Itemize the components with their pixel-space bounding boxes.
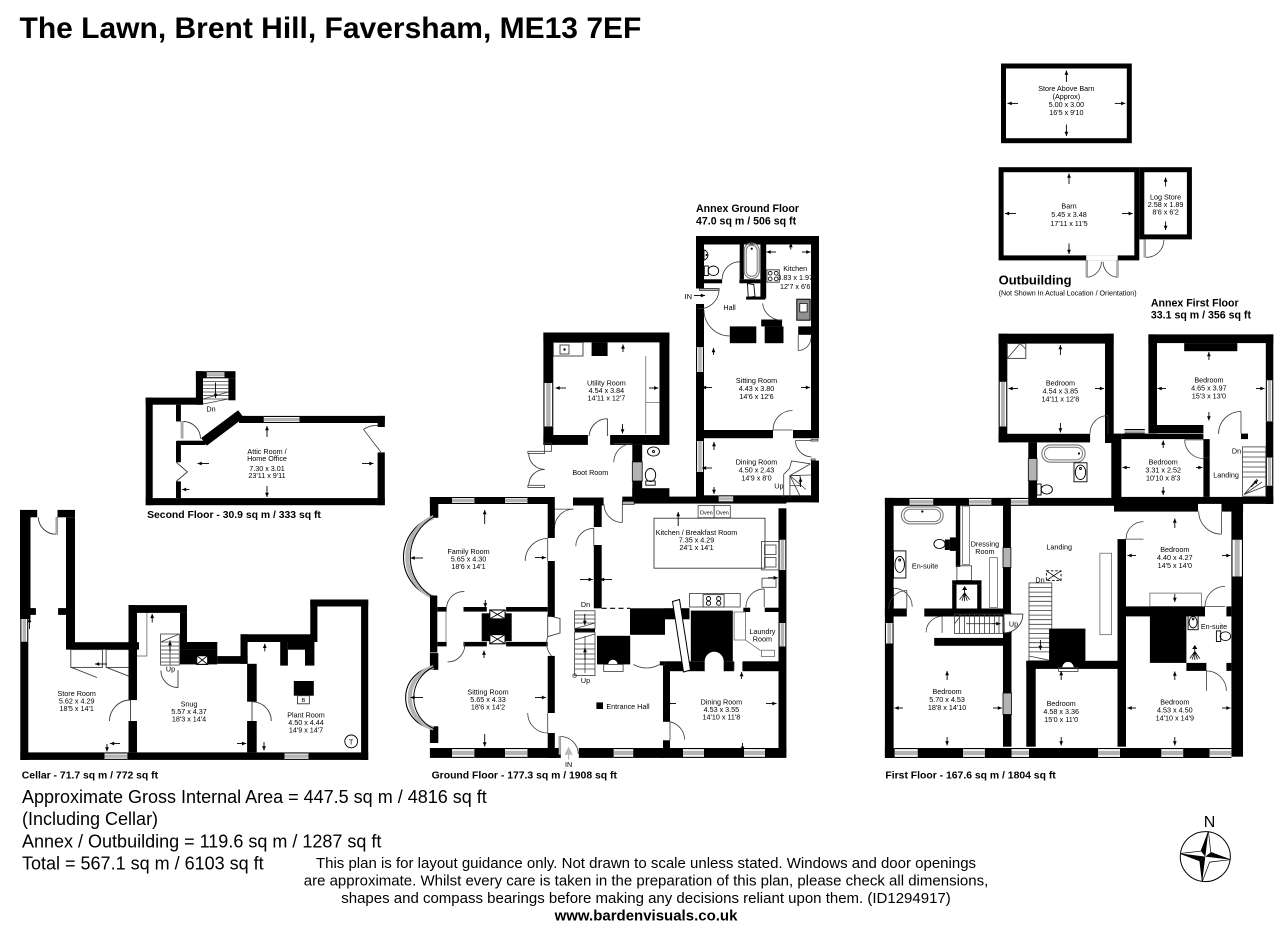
svg-text:Annex First Floor: Annex First Floor — [1151, 297, 1239, 309]
svg-text:3.83 x 1.97: 3.83 x 1.97 — [777, 273, 813, 282]
svg-text:14'10 x 14'9: 14'10 x 14'9 — [1156, 713, 1194, 722]
svg-text:18'6 x 14'2: 18'6 x 14'2 — [471, 703, 505, 712]
svg-text:Up: Up — [166, 665, 175, 674]
svg-text:(Including Cellar): (Including Cellar) — [22, 809, 158, 829]
svg-text:N: N — [1204, 814, 1216, 831]
svg-text:Ground Floor - 177.3 sq m / 19: Ground Floor - 177.3 sq m / 1908 sq ft — [432, 771, 618, 782]
svg-text:8'6 x 6'2: 8'6 x 6'2 — [1152, 207, 1178, 216]
svg-text:Annex / Outbuilding = 119.6 sq: Annex / Outbuilding = 119.6 sq m / 1287 … — [22, 832, 381, 852]
svg-text:Landing: Landing — [1213, 471, 1239, 480]
svg-text:Up: Up — [1009, 619, 1018, 628]
svg-text:Oven: Oven — [716, 511, 729, 517]
svg-text:Room: Room — [753, 635, 772, 644]
svg-text:Up: Up — [581, 676, 590, 685]
svg-text:En-suite: En-suite — [1201, 622, 1227, 631]
svg-text:Hall: Hall — [723, 303, 736, 312]
svg-text:Room: Room — [975, 547, 994, 556]
svg-text:12'7 x 6'6: 12'7 x 6'6 — [780, 282, 810, 291]
svg-text:5.45 x 3.48: 5.45 x 3.48 — [1051, 210, 1087, 219]
svg-text:First Floor - 167.6 sq m / 180: First Floor - 167.6 sq m / 1804 sq ft — [885, 771, 1056, 782]
svg-text:Barn: Barn — [1061, 201, 1076, 210]
svg-text:B: B — [301, 698, 305, 704]
svg-text:24'1 x 14'1: 24'1 x 14'1 — [679, 543, 713, 552]
svg-text:Dn: Dn — [1035, 576, 1044, 585]
svg-text:Entrance Hall: Entrance Hall — [606, 702, 650, 711]
svg-text:Annex Ground Floor: Annex Ground Floor — [696, 203, 799, 215]
svg-text:Total = 567.1 sq m / 6103 sq f: Total = 567.1 sq m / 6103 sq ft — [22, 854, 264, 874]
svg-text:33.1 sq m / 356 sq ft: 33.1 sq m / 356 sq ft — [1151, 310, 1252, 322]
svg-text:18'6 x 14'1: 18'6 x 14'1 — [451, 562, 485, 571]
svg-text:15'3 x 13'0: 15'3 x 13'0 — [1192, 392, 1226, 401]
svg-text:This plan is for layout guidan: This plan is for layout guidance only. N… — [316, 855, 976, 872]
svg-text:14'5 x 14'0: 14'5 x 14'0 — [1158, 561, 1192, 570]
svg-text:14'11 x 12'7: 14'11 x 12'7 — [588, 394, 626, 403]
svg-text:14'11 x 12'8: 14'11 x 12'8 — [1042, 395, 1080, 404]
svg-text:(Not Shown In Actual Location: (Not Shown In Actual Location / Orientat… — [999, 290, 1137, 298]
svg-text:17'11 x 11'5: 17'11 x 11'5 — [1050, 219, 1087, 228]
svg-text:T: T — [349, 739, 354, 746]
svg-text:14'10 x 11'8: 14'10 x 11'8 — [703, 713, 741, 722]
svg-text:14'9 x 14'7: 14'9 x 14'7 — [289, 725, 323, 734]
svg-text:shapes and compass bearings be: shapes and compass bearings before makin… — [341, 890, 951, 907]
svg-text:IN: IN — [565, 760, 572, 769]
svg-text:Dn: Dn — [206, 405, 215, 414]
svg-text:16'5 x 9'10: 16'5 x 9'10 — [1049, 108, 1083, 117]
svg-text:Home Office: Home Office — [247, 454, 287, 463]
svg-text:47.0 sq m / 506 sq ft: 47.0 sq m / 506 sq ft — [696, 215, 797, 227]
svg-text:Outbuilding: Outbuilding — [999, 273, 1072, 288]
svg-text:IN: IN — [685, 292, 693, 301]
svg-text:10'10 x 8'3: 10'10 x 8'3 — [1146, 473, 1180, 482]
svg-text:14'6 x 12'6: 14'6 x 12'6 — [739, 392, 773, 401]
svg-text:Oven: Oven — [700, 511, 713, 517]
svg-text:Boot Room: Boot Room — [572, 468, 608, 477]
svg-text:Landing: Landing — [1046, 543, 1072, 552]
svg-text:Up: Up — [774, 482, 783, 491]
svg-text:www.bardenvisuals.co.uk: www.bardenvisuals.co.uk — [554, 908, 738, 925]
svg-text:Cellar - 71.7 sq m / 772 sq ft: Cellar - 71.7 sq m / 772 sq ft — [22, 771, 159, 782]
svg-text:Dn: Dn — [581, 600, 590, 609]
svg-text:18'3 x 14'4: 18'3 x 14'4 — [172, 715, 206, 724]
svg-text:The Lawn, Brent Hill, Faversha: The Lawn, Brent Hill, Faversham, ME13 7E… — [20, 12, 642, 45]
svg-text:18'8 x 14'10: 18'8 x 14'10 — [928, 703, 966, 712]
svg-text:Approximate Gross Internal Are: Approximate Gross Internal Area = 447.5 … — [22, 787, 487, 807]
svg-text:23'11 x 9'11: 23'11 x 9'11 — [248, 471, 285, 480]
svg-text:15'0 x 11'0: 15'0 x 11'0 — [1044, 715, 1078, 724]
svg-text:Kitchen: Kitchen — [783, 264, 807, 273]
svg-text:Second Floor - 30.9 sq m / 333: Second Floor - 30.9 sq m / 333 sq ft — [147, 510, 321, 521]
svg-text:En-suite: En-suite — [912, 562, 938, 571]
svg-text:are approximate. Whilst every: are approximate. Whilst every care is ta… — [304, 873, 989, 890]
svg-text:18'5 x 14'1: 18'5 x 14'1 — [60, 704, 94, 713]
svg-text:14'9 x 8'0: 14'9 x 8'0 — [741, 473, 771, 482]
svg-text:Dn: Dn — [1232, 447, 1241, 456]
